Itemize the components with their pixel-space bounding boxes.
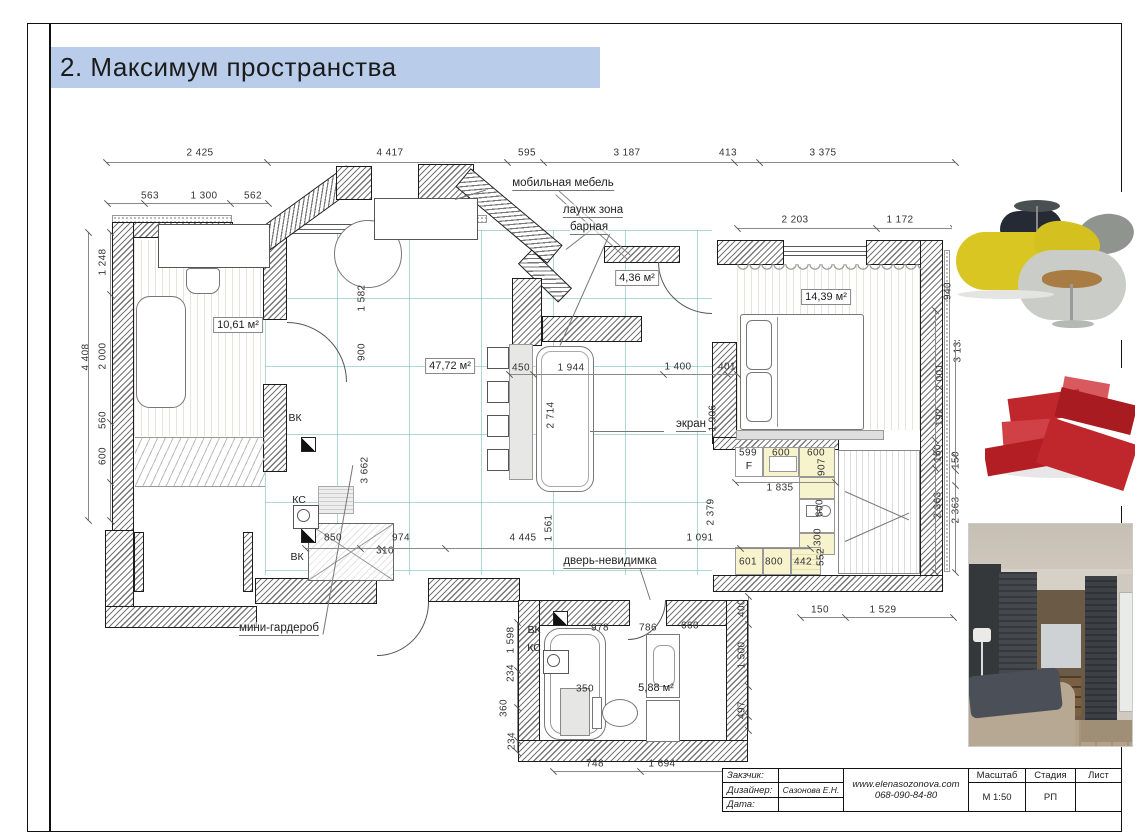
dimension-label: 442 (794, 557, 812, 568)
dimension-label: 800 (765, 557, 783, 568)
dimension-label: 497 (737, 701, 748, 719)
tech-label: ВК (288, 412, 301, 424)
mattress-split (777, 317, 778, 427)
toilet-tank (592, 697, 602, 729)
dimension-label: 1 300 (190, 191, 217, 202)
gas-meter-box (543, 650, 569, 674)
tech-label: ВК (527, 624, 540, 636)
dimension-label: 2 379 (706, 498, 717, 525)
dimension-label: 900 (357, 343, 368, 361)
hall-floor-hatch (135, 437, 265, 487)
dimension-label: 1 172 (886, 215, 913, 226)
floor-plan: 2 4254 4175953 1874133 3755631 3005622 2… (0, 0, 1136, 836)
dimension-label: 1 582 (357, 284, 368, 311)
dimension-label: 562 (244, 191, 262, 202)
dimension-label: 601 (739, 557, 757, 568)
dimension-label: 600 (98, 447, 109, 465)
white-door (1119, 592, 1133, 712)
dimension-label: 3 662 (360, 456, 371, 483)
annotation-label: экран (676, 418, 706, 432)
dimension-label: 1 561 (544, 514, 555, 541)
dimension-label: 850 (324, 533, 342, 544)
dimension-label: 350 (576, 684, 594, 695)
dimension-label: 974 (392, 533, 410, 544)
wall (726, 600, 748, 762)
contact-cell: www.elenasozonova.com 068-090-84-80 (843, 768, 969, 812)
wardrobe (838, 450, 920, 574)
red-modular-sofa-image (985, 368, 1135, 506)
date-value (778, 797, 844, 812)
wall (428, 578, 520, 602)
wall (336, 166, 372, 200)
sheet-value (1075, 782, 1122, 812)
dimension-label: 2 000 (98, 342, 109, 369)
vent-mark (301, 437, 316, 452)
customer-label: Закзчик: (722, 768, 779, 783)
dimension-label: 400 (737, 599, 748, 617)
dimension-label: 563 (141, 191, 159, 202)
dimension-label: 786 (639, 623, 657, 634)
room-area-label: 14,39 м² (801, 289, 851, 305)
wall (713, 575, 943, 592)
bar-stool (487, 347, 509, 369)
website: www.elenasozonova.com (852, 779, 959, 790)
bed (740, 314, 864, 430)
dimension-label: 360 (499, 699, 510, 717)
dimension-label: 978 (591, 623, 609, 634)
room-area-label: 47,72 м² (425, 358, 475, 374)
dimension-label: 4 445 (509, 533, 536, 544)
dimension-label: 1 091 (686, 533, 713, 544)
phone: 068-090-84-80 (875, 790, 937, 801)
wall (717, 240, 784, 265)
dimension-label: 3 187 (613, 148, 640, 159)
title-block: Закзчик: Дизайнер: Дата: Сазонова Е.Н. w… (722, 768, 1122, 812)
tech-label: ВК (290, 551, 303, 563)
tech-label: КС (292, 494, 306, 506)
hanging-clothes (1041, 624, 1081, 668)
dimension-label: 2 363 (951, 496, 962, 523)
washing-machine (646, 700, 680, 742)
curtain (737, 264, 923, 273)
scale-label: Масштаб (968, 768, 1026, 783)
dimension-label: 4 417 (376, 148, 403, 159)
poufs-lounge-furniture-image (952, 192, 1135, 340)
dimension-label: 599 (739, 448, 757, 459)
dimension-label: 2 203 (781, 215, 808, 226)
chair (186, 268, 220, 294)
vent-mark (301, 528, 316, 543)
table-base (1052, 320, 1094, 328)
leader-line (590, 431, 664, 432)
entrance-door-arc (377, 602, 429, 656)
dimension-label: 595 (518, 148, 536, 159)
door-jamb (134, 532, 144, 592)
wall (105, 606, 257, 628)
dimension-label: 907 (817, 458, 828, 476)
dimension-label: 660 (681, 621, 699, 632)
dimension-label: 748 (586, 759, 604, 770)
dimension-label: 4 408 (81, 343, 92, 370)
dimension-label: 2 001 (935, 363, 946, 390)
dimension-line (800, 617, 953, 618)
dimension-line (107, 203, 268, 204)
dimension-label: 1 529 (869, 605, 896, 616)
bar-stool (487, 381, 509, 403)
dimension-label: 552 (816, 548, 827, 566)
dimension-label: 1 944 (557, 363, 584, 374)
wood-table-stem (1070, 284, 1073, 322)
mobile-furniture-unit (374, 198, 478, 240)
sofa (136, 296, 186, 408)
pillow (746, 320, 772, 370)
stage-label: Стадия (1025, 768, 1076, 783)
dimension-label: 1 400 (664, 362, 691, 373)
dimension-label: 1 248 (98, 248, 109, 275)
dimension-label: 600 (815, 499, 826, 517)
dimension-label: 450 (512, 363, 530, 374)
dimension-label: 413 (719, 148, 737, 159)
rug (1081, 720, 1132, 742)
dimension-line (517, 622, 518, 752)
dimension-line (737, 228, 953, 229)
wardrobe-slat-panel (1085, 576, 1119, 742)
annotation-label: мобильная мебель (512, 177, 614, 191)
bar-stool (487, 415, 509, 437)
designer-value: Сазонова Е.Н. (778, 782, 844, 798)
dimension-label: 1 694 (648, 759, 675, 770)
date-label: Дата: (722, 797, 779, 812)
tech-label: F (746, 460, 752, 472)
bed-bench (736, 430, 884, 440)
shadow (958, 290, 1054, 299)
wall (263, 384, 287, 472)
dimension-line (88, 232, 89, 520)
stage-value: РП (1025, 782, 1076, 812)
dimension-label: 234 (507, 732, 518, 750)
dimension-line (110, 232, 111, 520)
dimension-label: 1 500 (737, 641, 748, 668)
dimension-line (748, 596, 749, 730)
dimension-line (735, 482, 835, 483)
dimension-label: 600 (807, 448, 825, 459)
vent-mark (553, 611, 568, 626)
dimension-label: 150 (811, 605, 829, 616)
bar-stool (487, 449, 509, 471)
customer-value (778, 768, 844, 783)
annotation-label: дверь-невидимка (563, 555, 656, 569)
dimension-label: 1 906 (708, 404, 719, 431)
dimension-label: 192 (935, 408, 946, 426)
bedroom-wardrobe-photo (968, 523, 1133, 747)
room-area-label: 4,36 м² (615, 270, 659, 286)
room-area-label: 5,88 м² (635, 681, 677, 695)
bath-cabinet (560, 688, 590, 736)
designer-label: Дизайнер: (722, 782, 779, 798)
kitchen-cell (799, 477, 835, 499)
wall (112, 222, 134, 534)
window (784, 246, 867, 256)
ceiling (969, 524, 1132, 569)
gas-meter-box (293, 505, 319, 529)
floor-lamp-shade (973, 628, 991, 642)
wall (518, 740, 748, 762)
dimension-line (509, 374, 737, 375)
wall (512, 278, 542, 346)
dimension-label: 1 598 (506, 626, 517, 653)
desk (158, 224, 270, 268)
wall (255, 578, 377, 604)
scale-value: М 1:50 (968, 782, 1026, 812)
annotation-label: лаунж зона (563, 204, 623, 218)
dimension-label: 2 714 (546, 401, 557, 428)
sheet-label: Лист (1075, 768, 1122, 783)
dimension-label: 600 (772, 448, 790, 459)
pillow (746, 372, 772, 422)
tech-label: КС (527, 642, 541, 654)
wall (866, 240, 924, 265)
toilet-bowl (602, 699, 638, 727)
dimension-label: 1 835 (766, 483, 793, 494)
presentation-sheet: { "page": { "title": "2. Максимум простр… (0, 0, 1136, 836)
dimension-label: 2 425 (186, 148, 213, 159)
wardrobe-door-mark (845, 513, 909, 542)
annotation-label: барная (570, 221, 608, 235)
door-jamb (243, 532, 253, 592)
wall (542, 316, 642, 342)
room-area-label: 10,61 м² (213, 317, 263, 333)
dimension-line (106, 162, 955, 163)
annotation-label: мини-гардероб (239, 622, 319, 636)
dimension-label: 3 375 (809, 148, 836, 159)
dimension-label: 300 (813, 528, 824, 546)
